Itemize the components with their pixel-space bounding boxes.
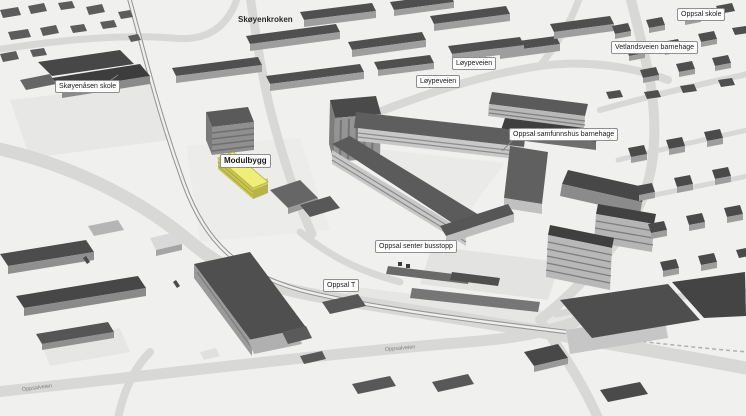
label-loypeveien-lower: Løypeveien [416,75,460,88]
label-vetlandsveien-barnehage: Vetlandsveien barnehage [611,41,698,54]
label-oppsal-samfunnshus-barnehage: Oppsal samfunnshus barnehage [509,128,618,141]
big-dark-building [194,252,312,360]
label-skoyenkroken: Skøyenkroken [238,15,293,24]
label-oppsal-senter-busstopp: Oppsal senter busstopp [375,240,457,253]
office-building [206,107,254,155]
label-modulbygg: Modulbygg [220,154,271,168]
label-oppsal-skole: Oppsal skole [677,8,725,21]
slabs-bottom-left [0,220,182,350]
label-skoyenasen-skole: Skøyenåsen skole [55,80,120,93]
label-loypeveien-upper: Løypeveien [452,57,496,70]
map-viewport[interactable]: Oppsalveien Oppsalveien Skøyenkroken Skø… [0,0,746,416]
label-oppsal-t: Oppsal T [323,279,359,292]
map-scene: Oppsalveien Oppsalveien [0,0,746,416]
